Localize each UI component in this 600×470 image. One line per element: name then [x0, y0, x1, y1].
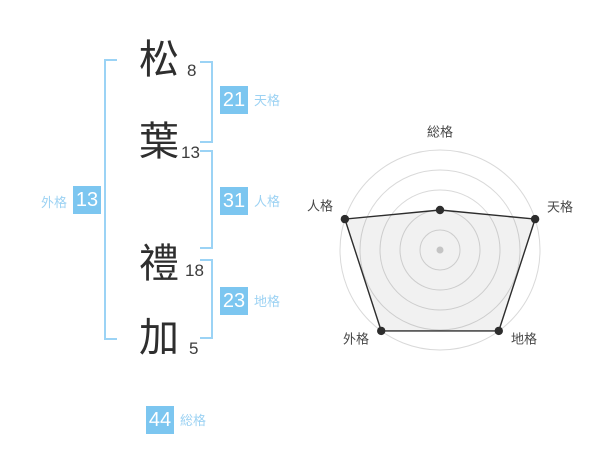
chikaku-value-badge: 23: [220, 287, 248, 315]
jinkaku-bracket: [200, 150, 213, 249]
gokaku-radar-chart: 総格天格地格外格人格: [290, 100, 590, 400]
gaikaku-value-badge: 13: [73, 186, 101, 214]
radar-vertex-dot: [377, 327, 385, 335]
radar-vertex-dot: [341, 215, 349, 223]
radar-axis-label: 人格: [307, 199, 333, 214]
jinkaku-label: 人格: [254, 195, 280, 208]
name-char-4: 加: [139, 318, 183, 358]
tenkaku-value-badge: 21: [220, 86, 248, 114]
stroke-count-1: 8: [187, 62, 196, 79]
gaikaku-label: 外格: [41, 196, 67, 209]
name-char-3: 禮: [139, 244, 183, 284]
radar-axis-label: 外格: [343, 332, 369, 347]
radar-vertex-dot: [436, 206, 444, 214]
soukaku-label: 総格: [180, 414, 206, 427]
soukaku-value-badge: 44: [146, 406, 174, 434]
radar-chart: 総格天格地格外格人格: [290, 100, 590, 400]
radar-vertex-dot: [531, 215, 539, 223]
radar-vertex-dot: [495, 327, 503, 335]
seimei-handan-panel: 松 葉 禮 加 8 13 18 5 21 天格 31 人格 23 地格 13 外…: [0, 0, 600, 470]
radar-center-dot: [437, 247, 444, 254]
chikaku-bracket: [200, 259, 213, 339]
radar-axis-label: 天格: [547, 200, 573, 215]
name-char-1: 松: [139, 40, 183, 80]
tenkaku-bracket: [200, 61, 213, 143]
radar-data-polygon: [345, 210, 535, 331]
stroke-count-4: 5: [189, 340, 198, 357]
chikaku-label: 地格: [254, 295, 280, 308]
tenkaku-label: 天格: [254, 94, 280, 107]
radar-axis-label: 総格: [427, 125, 453, 140]
jinkaku-value-badge: 31: [220, 187, 248, 215]
radar-axis-label: 地格: [511, 332, 537, 347]
stroke-count-2: 13: [181, 144, 200, 161]
gaikaku-bracket: [104, 59, 117, 340]
name-char-2: 葉: [139, 122, 183, 162]
